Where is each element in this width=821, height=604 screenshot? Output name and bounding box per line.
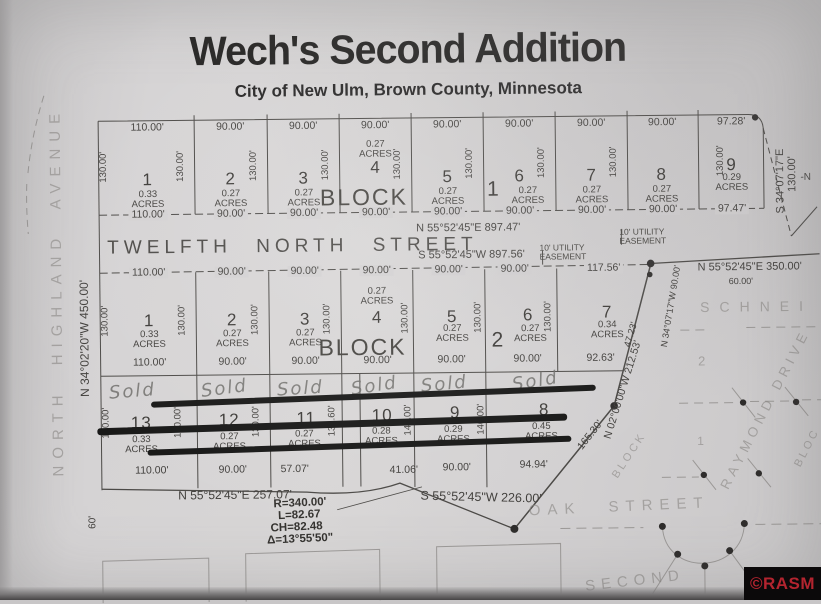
lot-number: 4 xyxy=(372,309,383,326)
acres-label: ACRES xyxy=(289,338,322,348)
lot-number: 1 xyxy=(144,312,155,329)
paper-bottom-edge-shadow xyxy=(0,587,762,600)
lot-number: 7 xyxy=(586,167,597,184)
offset-distance: 60.00' xyxy=(729,277,753,286)
street-name-schneider-partial: SCHNEI xyxy=(700,299,813,314)
lot-number: 2 xyxy=(225,170,236,187)
lot-number: 9 xyxy=(726,156,737,173)
rasm-watermark: ©RASM xyxy=(744,567,821,600)
lot-depth: 130.00' xyxy=(321,149,331,180)
plat-scan: Wech's Second Addition City of New Ulm, … xyxy=(0,0,821,604)
acres-label: ACRES xyxy=(514,334,547,344)
sold-annotation: Sold xyxy=(108,379,156,404)
lot-width-bottom: 90.00' xyxy=(218,356,246,367)
acres-label: ACRES xyxy=(715,183,748,193)
block2-number: 2 xyxy=(491,330,503,351)
lot-width-top: 90.00' xyxy=(433,119,461,130)
lot-depth: 130.00' xyxy=(100,306,110,337)
curve-data-table: R=340.00' L=82.67 CH=82.48 Δ=13°55'50" xyxy=(265,496,333,547)
lot-width-top: 110.00' xyxy=(130,122,163,133)
lot-width-bottom: 97.47' xyxy=(715,203,749,214)
lot-width-bottom: 90.00' xyxy=(431,206,465,217)
lot-width-bottom: 90.00' xyxy=(437,354,465,365)
lot-width-bottom: 90.00' xyxy=(287,208,321,219)
lot-depth: 130.00' xyxy=(251,406,261,437)
lot-width-top: 90.00' xyxy=(359,265,393,276)
lot-depth: 130.00' xyxy=(173,407,183,438)
lot-depth: 130.00' xyxy=(99,152,109,183)
lot-width-bottom: 57.07' xyxy=(281,464,309,475)
lot-width-top: 90.00' xyxy=(505,118,533,129)
lot-depth: 130.00' xyxy=(473,302,483,333)
lot-number: 6 xyxy=(514,167,525,184)
acres-label: ACRES xyxy=(591,330,624,340)
acres-label: ACRES xyxy=(215,199,248,209)
west-boundary-bearing: N 34°02'20"W 450.00' xyxy=(78,280,91,397)
lot-depth: 130.00' xyxy=(176,151,186,182)
utility-easement-note: 10' UTILITY EASEMENT xyxy=(619,227,677,246)
block1-label: BLOCK xyxy=(320,186,408,210)
lot-width-top: 110.00' xyxy=(129,267,168,278)
lot-number: 8 xyxy=(656,166,667,183)
acres-label: ACRES xyxy=(646,194,679,204)
lot-number: 2 xyxy=(227,311,238,328)
acres-label: ACRES xyxy=(288,198,321,208)
lot-depth: 130.00' xyxy=(177,305,187,336)
lot-depth: 130.00' xyxy=(250,304,260,335)
right-of-way-width: 60' xyxy=(88,516,98,529)
lot-width-bottom: 90.00' xyxy=(219,464,247,475)
lot-depth: 130.00' xyxy=(393,149,403,180)
lot-width-bottom: 110.00' xyxy=(128,209,167,220)
lot-width-bottom: 92.63' xyxy=(586,353,614,364)
acres-label: ACRES xyxy=(512,196,545,206)
lot-width-top: 90.00' xyxy=(287,266,321,277)
lot-number: 4 xyxy=(370,159,381,176)
acres-label: ACRES xyxy=(436,334,469,344)
plat-title: Wech's Second Addition xyxy=(14,22,803,77)
faint-adjacent-lot-number: 2 xyxy=(698,354,705,367)
lot-width-bottom: 90.00' xyxy=(575,205,609,216)
clipped-bearing-label: -N xyxy=(800,173,811,183)
lot-depth: 130.00' xyxy=(465,148,475,179)
lot-depth: 130.00' xyxy=(609,146,619,177)
acres-label: ACRES xyxy=(216,339,249,349)
lot-width-top: 90.00' xyxy=(577,118,605,129)
lot-depth: 130.00' xyxy=(537,147,547,178)
lot-width-bottom: 94.94' xyxy=(520,459,548,470)
paper-left-edge-shadow xyxy=(0,0,13,600)
faint-adjacent-lot-number: 1 xyxy=(697,435,704,447)
lot-depth: 130.00' xyxy=(400,303,410,334)
lot-number: 5 xyxy=(442,168,453,185)
lot-width-top: 90.00' xyxy=(361,120,389,131)
lot-width-top: 90.00' xyxy=(289,121,317,132)
lot-width-top: 90.00' xyxy=(216,121,244,132)
acres-label: ACRES xyxy=(432,197,465,207)
street-north-bearing: N 55°52'45"E 897.47' xyxy=(416,222,520,234)
acres-label: ACRES xyxy=(576,195,609,205)
lot-width-bottom: 90.00' xyxy=(443,462,471,473)
lot-number: 1 xyxy=(142,171,153,188)
lot-width-bottom: 90.00' xyxy=(503,205,537,216)
lot-number: 6 xyxy=(523,306,534,323)
utility-easement-note: 10' UTILITY EASEMENT xyxy=(539,243,597,262)
street-south-bearing: S 55°52'45"W 897.56' xyxy=(418,249,525,261)
lot-width-bottom: 110.00' xyxy=(133,357,166,368)
acres-label: ACRES xyxy=(133,340,166,350)
lot-number: 3 xyxy=(300,311,311,328)
northeast-boundary-bearing: N 55°52'45"E 350.00' xyxy=(697,261,801,273)
east-boundary-distance: 130.00' xyxy=(787,156,798,192)
lot-width-top: 90.00' xyxy=(431,264,465,275)
block1-number: 1 xyxy=(487,179,499,200)
lot-number: 7 xyxy=(602,303,613,320)
acres-label: ACRES xyxy=(132,200,165,210)
street-name-highland: NORTH HIGHLAND AVENUE xyxy=(47,107,66,477)
lot-depth: 130.00' xyxy=(716,145,726,176)
lot-width-bottom: 41.06' xyxy=(390,465,418,476)
lot-width-top: 97.28' xyxy=(717,116,745,127)
block2-label: BLOCK xyxy=(318,336,406,360)
lot-width-bottom: 90.00' xyxy=(291,356,319,367)
lot-width-bottom: 90.00' xyxy=(646,204,680,215)
lot-depth: 130.00' xyxy=(543,301,553,332)
lot-width-top: 90.00' xyxy=(497,263,531,274)
acres-label: ACRES xyxy=(361,296,394,306)
acres-label: ACRES xyxy=(359,149,392,159)
lot-depth: 130.00' xyxy=(322,303,332,334)
lot-number: 3 xyxy=(298,170,309,187)
east-boundary-bearing: S 34°07'17"E xyxy=(775,149,787,214)
lot-width-bottom: 90.00' xyxy=(513,353,541,364)
lot-width-top: 90.00' xyxy=(215,266,249,277)
lot-width-bottom: 90.00' xyxy=(214,208,248,219)
south-boundary-bearing-east: S 55°52'45"W 226.00' xyxy=(420,490,542,505)
lot-width-top: 117.56' xyxy=(584,263,623,274)
lot-width-top: 90.00' xyxy=(648,117,676,128)
lot-width-bottom: 110.00' xyxy=(135,465,168,476)
lot-depth: 130.00' xyxy=(249,150,259,181)
